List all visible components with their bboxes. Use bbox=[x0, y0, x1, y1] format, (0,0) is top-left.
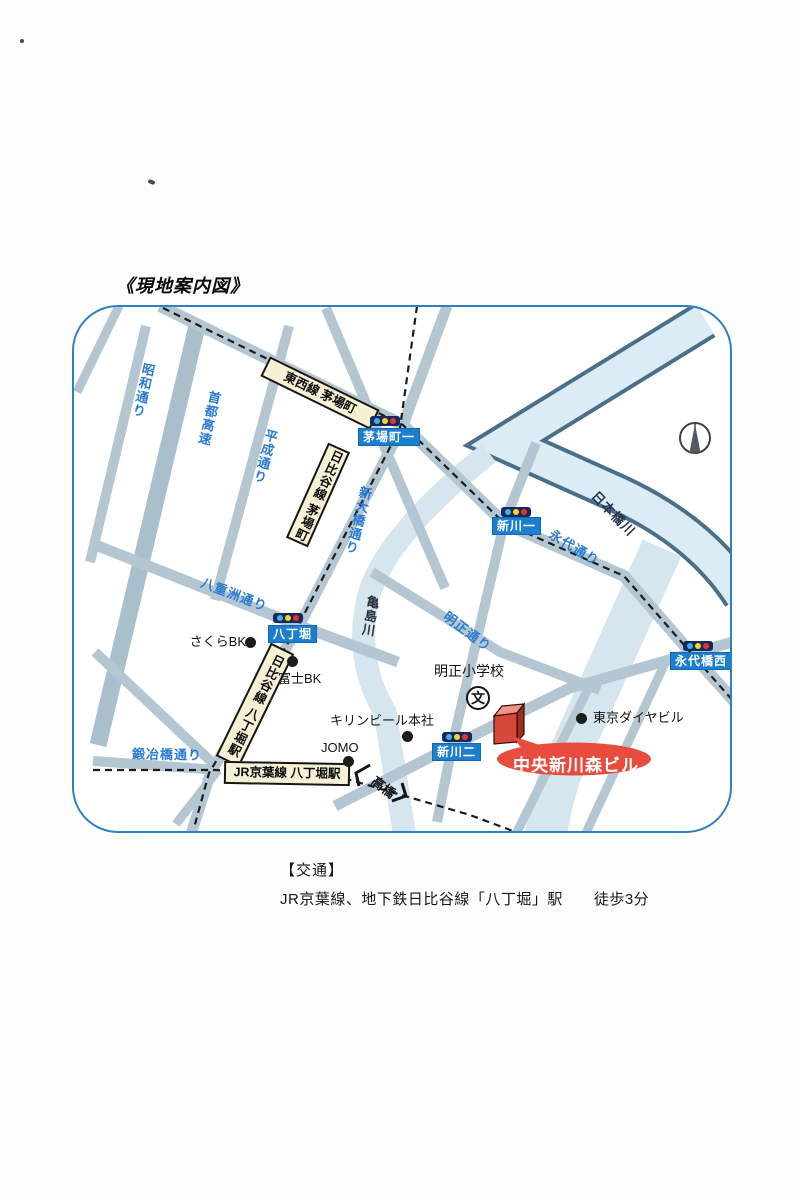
scanned-access-map-page: { "page_title": "《現地案内図》", "map": { "roa… bbox=[0, 0, 800, 1200]
scan-speck bbox=[20, 39, 24, 43]
poi-dot bbox=[287, 656, 298, 667]
crossing-hatchobori: 八丁堀 bbox=[268, 625, 317, 643]
crossing-shinkawa-1: 新川一 bbox=[492, 517, 541, 535]
road-label-kajibashi-dori: 鍛冶橋通り bbox=[132, 747, 202, 763]
traffic-light-icon bbox=[501, 507, 531, 517]
road-corner bbox=[77, 306, 119, 392]
road-showa-dori bbox=[90, 326, 146, 562]
north-compass-icon bbox=[680, 423, 710, 453]
poi-dot bbox=[576, 713, 587, 724]
poi-label-fuji-bk: 富士BK bbox=[278, 672, 321, 686]
traffic-light-icon bbox=[370, 416, 400, 426]
poi-dot bbox=[245, 637, 256, 648]
poi-label-kirin-beer-hq: キリンビール本社 bbox=[330, 714, 434, 728]
footer-access-text: JR京葉線、地下鉄日比谷線「八丁堀」駅 徒歩3分 bbox=[280, 888, 649, 909]
poi-label-jomo: JOMO bbox=[321, 741, 359, 755]
traffic-light-icon bbox=[273, 613, 303, 623]
destination-label: 中央新川森ビル bbox=[506, 751, 646, 776]
page-title: 《現地案内図》 bbox=[116, 272, 249, 298]
poi-dot bbox=[402, 731, 413, 742]
crossing-shinkawa-2: 新川二 bbox=[432, 743, 481, 761]
map-canvas: 昭和通り 首都高速 平成通り 新大橋通り 永代通り 八重洲通り 明正通り 鍛冶橋… bbox=[72, 305, 732, 833]
footer-heading: 【交通】 bbox=[280, 859, 344, 880]
school-label: 明正小学校 bbox=[434, 664, 504, 679]
poi-label-tokyo-daiya-bldg: 東京ダイヤビル bbox=[593, 711, 684, 725]
traffic-light-icon bbox=[442, 732, 472, 742]
poi-label-sakura-bk: さくらBK bbox=[186, 635, 246, 649]
crossing-eitaibashi-west: 永代橋西 bbox=[670, 652, 732, 670]
scan-speck bbox=[148, 179, 156, 185]
poi-dot bbox=[343, 756, 354, 767]
nihonbashi-river bbox=[505, 320, 732, 596]
destination-building-icon bbox=[494, 704, 524, 744]
crossing-kayabacho-1: 茅場町一 bbox=[358, 428, 420, 446]
traffic-light-icon bbox=[683, 641, 713, 651]
station-box-jr-keiyo-hatchobori: JR京葉線 八丁堀駅 bbox=[224, 761, 350, 786]
school-symbol-icon: 文 bbox=[466, 686, 490, 710]
